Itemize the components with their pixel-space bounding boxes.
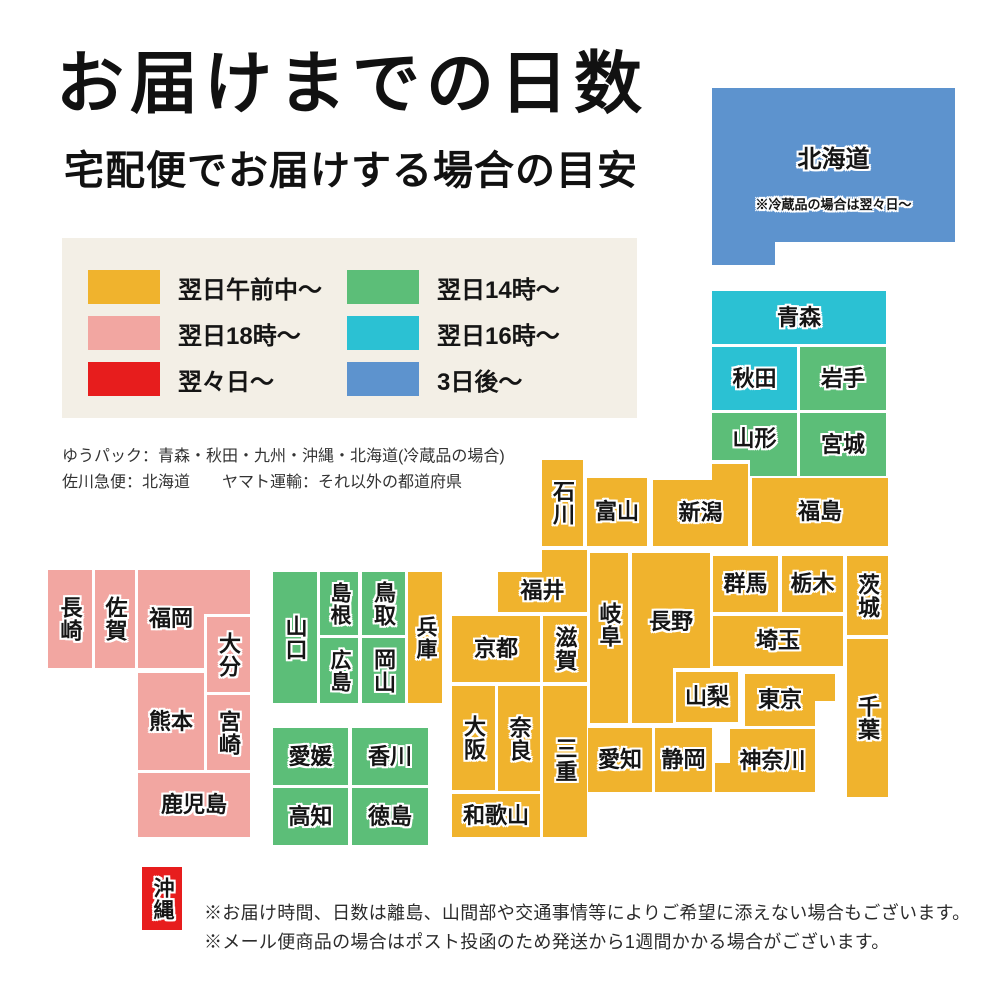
footer-disclaimer-line1: ※お届け時間、日数は離島、山間部や交通事情等によりご希望に添えない場合もございま… xyxy=(204,899,970,928)
pref-chiba-label: 千葉 xyxy=(847,639,888,797)
pref-ibaraki-label: 茨城 xyxy=(847,556,888,635)
pref-hiroshima-label: 広島 xyxy=(320,638,358,703)
pref-aichi-label: 愛知 xyxy=(588,728,652,792)
pref-miyazaki-label: 宮崎 xyxy=(207,695,250,770)
pref-hokkaido-label: 北海道 xyxy=(712,130,955,190)
pref-aomori-label: 青森 xyxy=(712,291,886,344)
pref-kumamoto-label: 熊本 xyxy=(138,673,204,770)
pref-osaka-label: 大阪 xyxy=(452,686,495,790)
pref-niigata-label: 新潟 xyxy=(653,480,748,546)
pref-kyoto-label: 京都 xyxy=(452,616,540,682)
pref-wakayama-label: 和歌山 xyxy=(452,794,540,837)
pref-shimane-label: 島根 xyxy=(320,572,358,635)
pref-tokushima-label: 徳島 xyxy=(352,788,428,845)
pref-oita-label: 大分 xyxy=(207,617,250,692)
pref-tochigi-label: 栃木 xyxy=(782,556,843,612)
pref-yamaguchi-label: 山口 xyxy=(273,572,317,703)
pref-kanagawa-label: 神奈川 xyxy=(730,729,815,792)
pref-miyagi-label: 宮城 xyxy=(800,413,886,476)
pref-shizuoka-label: 静岡 xyxy=(655,728,712,792)
pref-ehime-label: 愛媛 xyxy=(273,728,348,785)
pref-okayama-label: 岡山 xyxy=(362,638,405,703)
pref-iwate-label: 岩手 xyxy=(800,347,886,410)
pref-hokkaido-note-label: ※冷蔵品の場合は翌々日〜 xyxy=(712,192,955,218)
pref-gifu-label: 岐阜 xyxy=(590,570,628,680)
pref-fukushima-label: 福島 xyxy=(752,478,888,546)
japan-map: 北海道※冷蔵品の場合は翌々日〜青森秋田岩手山形宮城石川富山新潟福島福井岐阜長野群… xyxy=(0,0,1000,1000)
pref-nara-label: 奈良 xyxy=(498,686,540,791)
pref-toyama-label: 富山 xyxy=(587,478,647,546)
pref-tokyo-label: 東京 xyxy=(745,674,815,726)
pref-gunma-label: 群馬 xyxy=(713,556,778,612)
pref-tottori-label: 鳥取 xyxy=(362,572,405,635)
pref-yamagata-label: 山形 xyxy=(712,413,797,465)
pref-hyogo-label: 兵庫 xyxy=(408,572,442,703)
pref-nagano-label: 長野 xyxy=(632,582,710,662)
pref-kagawa-label: 香川 xyxy=(352,728,428,785)
pref-fukuoka-label: 福岡 xyxy=(138,590,204,648)
pref-ishikawa-label: 石川 xyxy=(542,460,583,546)
pref-kagoshima-label: 鹿児島 xyxy=(138,773,250,837)
pref-nagasaki-label: 長崎 xyxy=(48,570,92,668)
pref-saga-label: 佐賀 xyxy=(95,570,135,668)
pref-fukui-label: 福井 xyxy=(498,570,587,612)
pref-okinawa-label: 沖縄 xyxy=(142,867,182,930)
pref-shiga-label: 滋賀 xyxy=(543,616,587,682)
pref-kochi-label: 高知 xyxy=(273,788,348,845)
delivery-days-infographic: お届けまでの日数 宅配便でお届けする場合の目安 翌日午前中〜翌日18時〜翌々日〜… xyxy=(0,0,1000,1000)
pref-yamanashi-label: 山梨 xyxy=(676,672,738,722)
pref-mie-label: 三重 xyxy=(543,700,587,820)
footer-disclaimer: ※お届け時間、日数は離島、山間部や交通事情等によりご希望に添えない場合もございま… xyxy=(204,899,970,957)
pref-akita-label: 秋田 xyxy=(712,347,797,410)
pref-saitama-label: 埼玉 xyxy=(713,616,843,666)
footer-disclaimer-line2: ※メール便商品の場合はポスト投函のため発送から1週間かかる場合がございます。 xyxy=(204,928,970,957)
